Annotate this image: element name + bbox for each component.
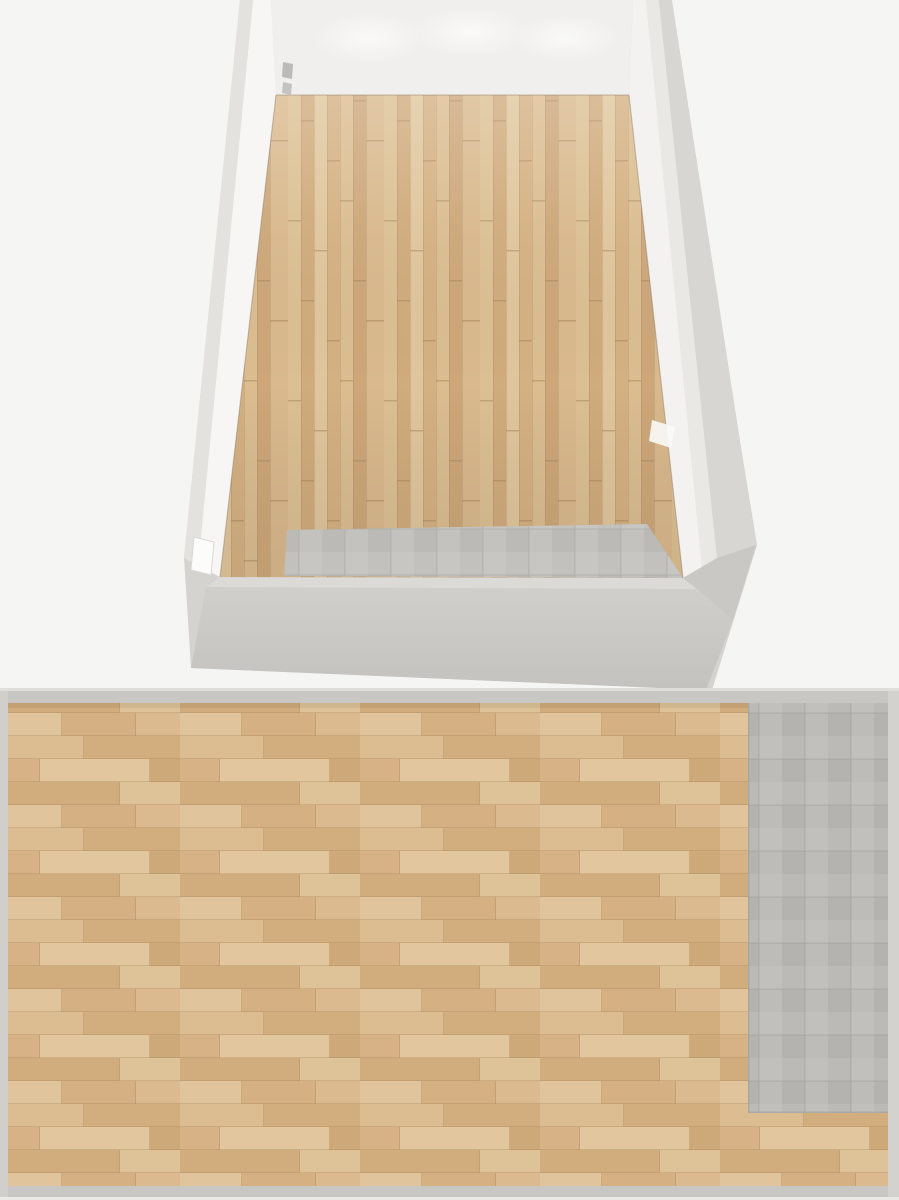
plan-left-wall bbox=[0, 691, 8, 1200]
wall-panel-icon bbox=[282, 62, 293, 79]
front-wall-top-edge bbox=[206, 577, 697, 589]
floor-shading bbox=[220, 95, 683, 578]
gym-planner-screenshot bbox=[0, 0, 899, 1200]
tile-edge bbox=[748, 1112, 888, 1114]
plan-view-panel bbox=[0, 688, 899, 1200]
tile-edge bbox=[748, 703, 750, 1113]
left-door bbox=[191, 537, 214, 575]
wall-panel-icon bbox=[282, 82, 292, 95]
plan-wall-outer-edge bbox=[0, 688, 899, 691]
plan-right-wall bbox=[888, 691, 899, 1200]
tile-sheen bbox=[284, 524, 683, 578]
tile-area-plan bbox=[748, 703, 888, 1113]
ceiling-light-glow bbox=[412, 6, 528, 58]
perspective-view-panel bbox=[0, 0, 899, 691]
ceiling-light-glow bbox=[312, 12, 428, 64]
ceiling-light-glow bbox=[512, 14, 620, 62]
